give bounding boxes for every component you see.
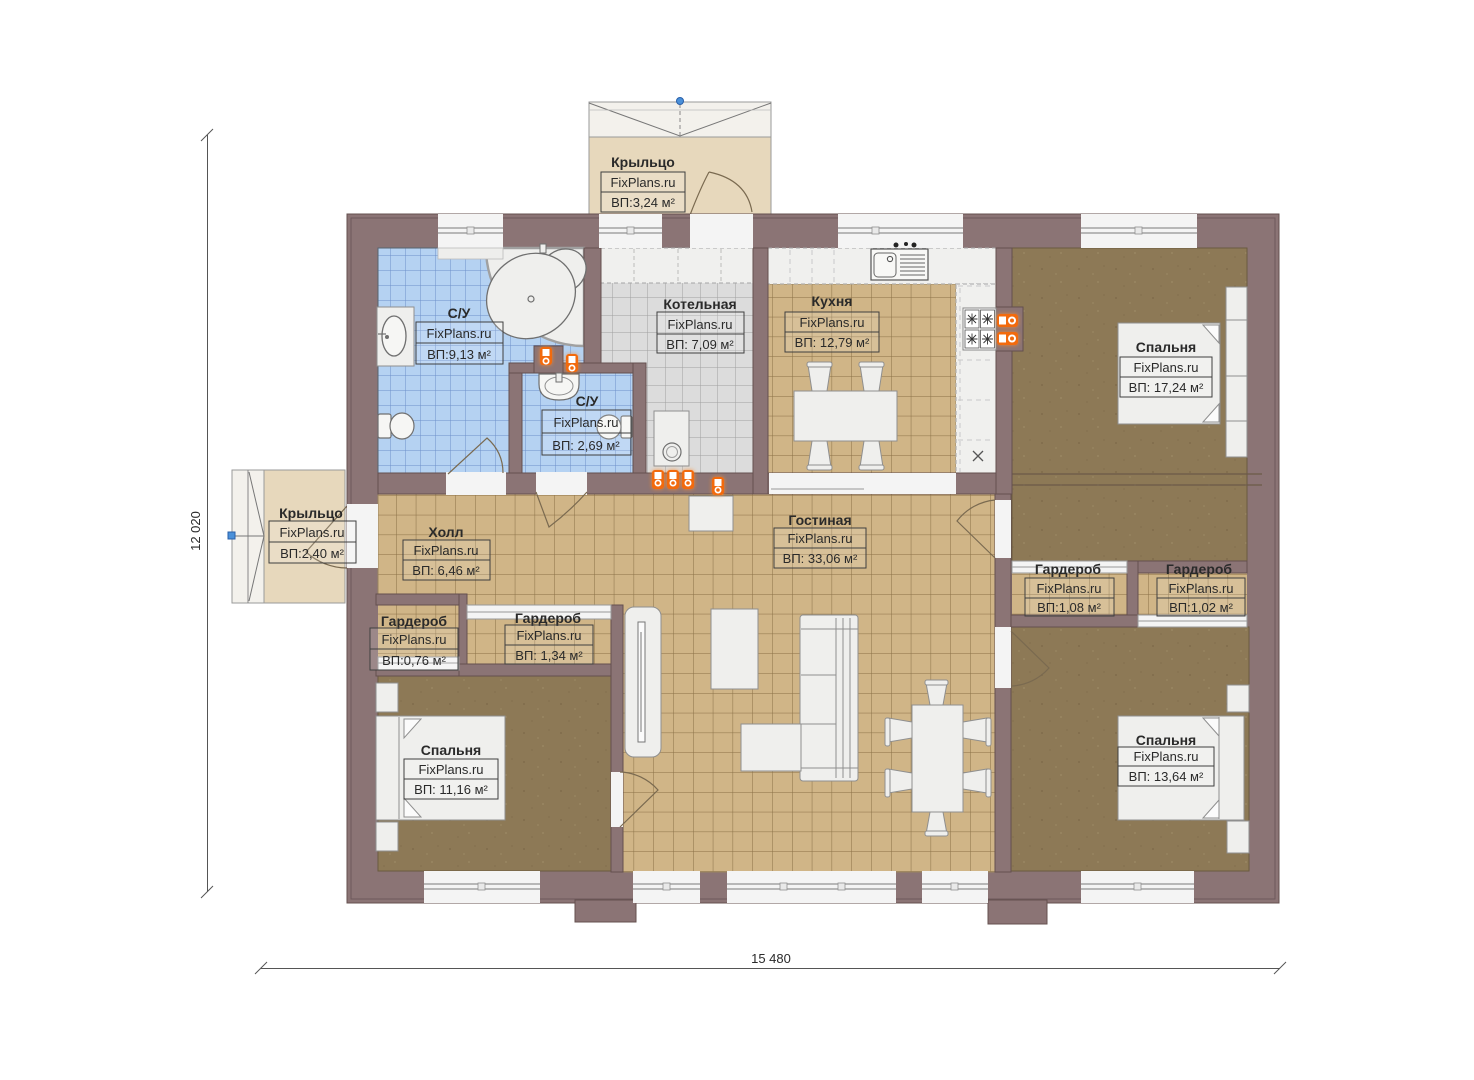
svg-text:FixPlans.ru: FixPlans.ru bbox=[426, 326, 491, 341]
svg-text:С/У: С/У bbox=[448, 305, 471, 321]
svg-text:ВП: 7,09 м²: ВП: 7,09 м² bbox=[666, 337, 734, 352]
svg-text:С/У: С/У bbox=[576, 393, 599, 409]
svg-text:ВП: 33,06 м²: ВП: 33,06 м² bbox=[783, 551, 858, 566]
svg-text:ВП:0,76 м²: ВП:0,76 м² bbox=[382, 653, 446, 668]
svg-text:ВП: 11,16 м²: ВП: 11,16 м² bbox=[414, 782, 488, 797]
svg-text:Гардероб: Гардероб bbox=[515, 610, 582, 626]
svg-text:Гардероб: Гардероб bbox=[381, 613, 448, 629]
svg-text:Спальня: Спальня bbox=[421, 742, 481, 758]
svg-text:FixPlans.ru: FixPlans.ru bbox=[413, 543, 478, 558]
svg-text:12 020: 12 020 bbox=[188, 511, 203, 551]
svg-text:Гостиная: Гостиная bbox=[788, 512, 851, 528]
svg-text:FixPlans.ru: FixPlans.ru bbox=[279, 525, 344, 540]
svg-text:Крыльцо: Крыльцо bbox=[611, 154, 675, 170]
svg-text:ВП:2,40 м²: ВП:2,40 м² bbox=[280, 546, 344, 561]
svg-text:Гардероб: Гардероб bbox=[1035, 561, 1102, 577]
svg-text:ВП: 6,46 м²: ВП: 6,46 м² bbox=[412, 563, 480, 578]
svg-text:FixPlans.ru: FixPlans.ru bbox=[418, 762, 483, 777]
svg-text:FixPlans.ru: FixPlans.ru bbox=[1133, 360, 1198, 375]
svg-text:FixPlans.ru: FixPlans.ru bbox=[553, 415, 618, 430]
svg-text:Кухня: Кухня bbox=[812, 293, 853, 309]
svg-text:ВП: 17,24 м²: ВП: 17,24 м² bbox=[1129, 380, 1204, 395]
svg-text:15 480: 15 480 bbox=[751, 951, 791, 966]
svg-text:FixPlans.ru: FixPlans.ru bbox=[1168, 581, 1233, 596]
svg-text:FixPlans.ru: FixPlans.ru bbox=[381, 632, 446, 647]
svg-text:FixPlans.ru: FixPlans.ru bbox=[667, 317, 732, 332]
svg-text:FixPlans.ru: FixPlans.ru bbox=[610, 175, 675, 190]
svg-text:FixPlans.ru: FixPlans.ru bbox=[516, 628, 581, 643]
svg-text:Котельная: Котельная bbox=[663, 296, 736, 312]
svg-text:Гардероб: Гардероб bbox=[1166, 561, 1233, 577]
svg-text:FixPlans.ru: FixPlans.ru bbox=[799, 315, 864, 330]
svg-text:Спальня: Спальня bbox=[1136, 732, 1196, 748]
svg-text:FixPlans.ru: FixPlans.ru bbox=[1036, 581, 1101, 596]
svg-text:FixPlans.ru: FixPlans.ru bbox=[787, 531, 852, 546]
svg-text:ВП: 12,79 м²: ВП: 12,79 м² bbox=[795, 335, 870, 350]
svg-text:ВП:9,13 м²: ВП:9,13 м² bbox=[427, 347, 491, 362]
svg-text:ВП:1,08 м²: ВП:1,08 м² bbox=[1037, 600, 1101, 615]
svg-text:Спальня: Спальня bbox=[1136, 339, 1196, 355]
svg-text:FixPlans.ru: FixPlans.ru bbox=[1133, 749, 1198, 764]
svg-text:ВП:3,24 м²: ВП:3,24 м² bbox=[611, 195, 675, 210]
svg-text:Холл: Холл bbox=[428, 524, 463, 540]
svg-text:ВП: 2,69 м²: ВП: 2,69 м² bbox=[552, 438, 620, 453]
svg-text:ВП: 13,64 м²: ВП: 13,64 м² bbox=[1129, 769, 1204, 784]
svg-text:ВП: 1,34 м²: ВП: 1,34 м² bbox=[515, 648, 583, 663]
svg-text:ВП:1,02 м²: ВП:1,02 м² bbox=[1169, 600, 1233, 615]
svg-text:Крыльцо: Крыльцо bbox=[279, 505, 343, 521]
